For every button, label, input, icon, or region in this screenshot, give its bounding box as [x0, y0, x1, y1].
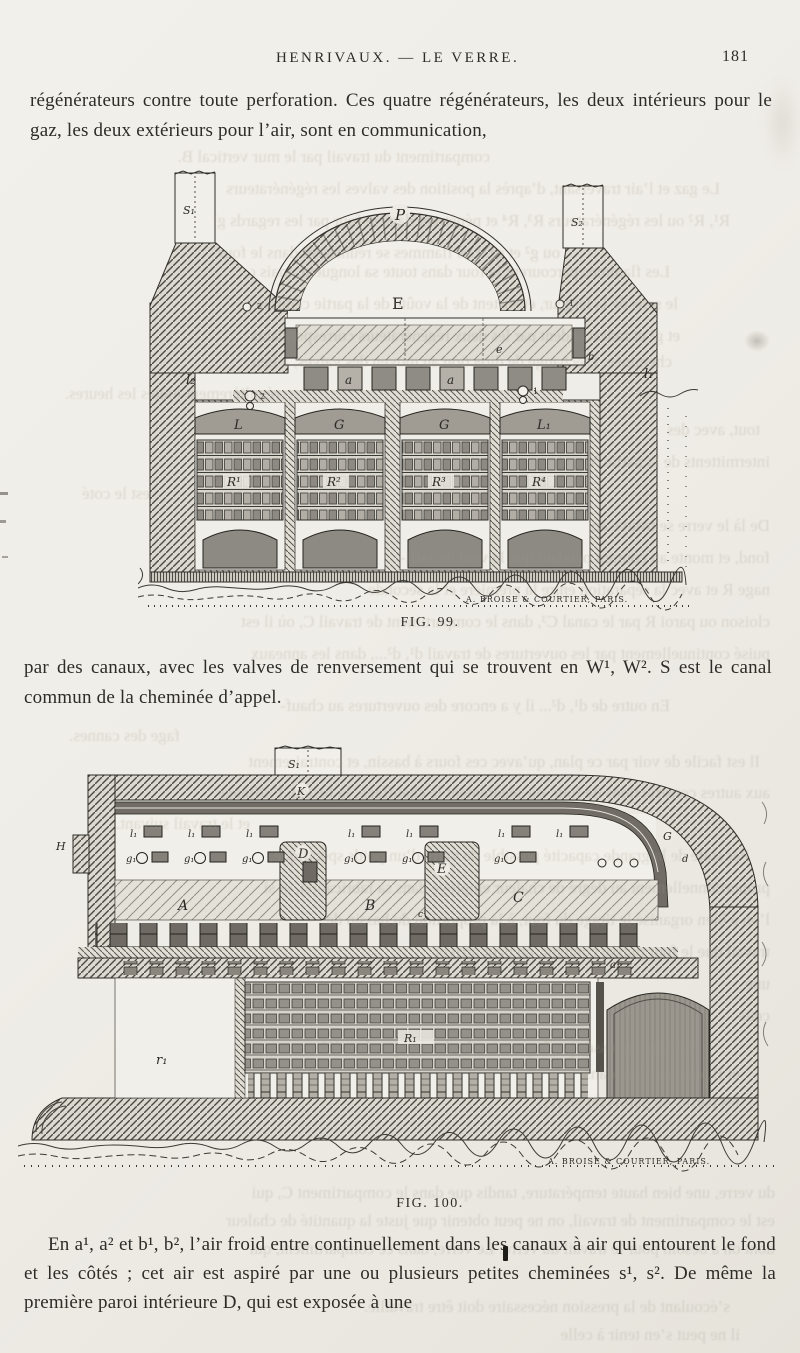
fig99-engraving: L R¹ G R² G R³ L₁: [138, 168, 708, 618]
fig100-engraver-signature: A. BROISE & COURTIER, PARIS.: [547, 1157, 710, 1166]
fig99-chamber-3: G R³: [400, 402, 490, 570]
fig99-label-l2: l₂: [186, 373, 195, 388]
fig99-checker-label-3: R³: [431, 475, 446, 489]
bleed-line: est le coté: [30, 484, 150, 504]
fig100-damper-row: [95, 923, 640, 947]
fig99-valve-num-right: 1: [533, 387, 538, 396]
edge-mark: [0, 520, 6, 523]
fig100-lower-wall-checker: [118, 961, 638, 975]
fig100-label-a1: a₁: [610, 960, 620, 971]
paragraph-3: En a¹, a² et b¹, b², l’air froid entre c…: [24, 1230, 776, 1317]
fig99-label-s1: S₁: [183, 204, 195, 217]
fig100-label-h: H: [55, 840, 66, 853]
fig99-valve-num-left: 2: [260, 392, 265, 401]
edge-mark: [2, 556, 8, 558]
edge-mark: [0, 492, 8, 495]
fig100-label-l1: l₁: [130, 829, 137, 840]
fig100-label-R1: R₁: [403, 1032, 417, 1045]
fig100-label-b: B: [364, 898, 375, 914]
fig99-label-l1: l₁: [644, 367, 653, 382]
fig100-label-l1: l₁: [498, 829, 505, 840]
fig100-label-s1: S₁: [288, 758, 300, 771]
fig99-label-s2: S₂: [571, 216, 583, 229]
fig100-right-ports: [598, 859, 638, 867]
fig99-molten-glass: [296, 325, 572, 360]
fig100-label-g1: g₁: [402, 854, 412, 865]
margin-smudge: [744, 330, 770, 352]
fig99-label-a-right: a: [447, 373, 454, 387]
fig100-bottom-wall: [32, 1098, 758, 1140]
fig100-label-l1: l₁: [188, 829, 195, 840]
fig100-right-wall: [710, 907, 758, 1102]
fig100-label-l1: l₁: [556, 829, 563, 840]
fig99-checker-label-2: R²: [326, 475, 341, 489]
fig99-valve-num-left-top: 2: [257, 302, 262, 311]
fig99-chamber-4: L₁ R⁴: [500, 402, 590, 570]
fig99-caption: FIG. 99.: [360, 615, 500, 631]
fig100-label-g1: g₁: [494, 854, 504, 865]
fig100-checker-supports: [248, 1073, 588, 1098]
fig100-label-g1: g₁: [242, 854, 252, 865]
fig100-label-g1: g₁: [184, 854, 194, 865]
running-head-title: HENRIVAUX. — LE VERRE.: [276, 50, 519, 67]
fig100-glass-band: [115, 880, 658, 920]
bleed-line: il ne peut s’en tenir à celle: [400, 1325, 740, 1345]
fig100-checkerwork: [245, 982, 590, 1073]
fig100-label-l1: l₁: [348, 829, 355, 840]
fig99-checker-label-1: R¹: [226, 475, 241, 489]
fig100-label-l1: l₁: [406, 829, 413, 840]
fig99-arch-label-2: G: [334, 418, 344, 433]
fig100-label-r1-small: r₁: [156, 1053, 167, 1068]
fig100-chimney: S₁: [275, 746, 341, 775]
fig100-label-e-pillar: E: [436, 862, 447, 877]
fig100-label-k: K: [296, 785, 306, 798]
ink-blot-artifact: [503, 1246, 508, 1261]
fig100-label-g: G: [663, 830, 672, 843]
fig100-label-g1: g₁: [344, 854, 354, 865]
fig99-engraver-signature: A. BROISE & COURTIER, PARIS.: [465, 595, 628, 604]
fig100-label-c: C: [513, 890, 524, 906]
fig100-label-g1: g₁: [126, 854, 136, 865]
scanned-book-page: compartiment du travail par le mur verti…: [0, 0, 800, 1353]
fig99-label-e-big: E: [392, 294, 404, 313]
fig100-partition-bar: [596, 982, 604, 1072]
fig100-label-a: A: [176, 898, 188, 914]
fig99-left-shoulder: [150, 243, 288, 373]
fig99-arch-label-3: G: [439, 418, 449, 433]
fig99-arch-label-1: L: [233, 418, 243, 433]
fig100-caption: FIG. 100.: [355, 1196, 505, 1212]
page-number: 181: [722, 48, 749, 66]
fig99-label-b: b: [588, 352, 594, 363]
fig99-label-p: P: [394, 206, 406, 224]
fig99-chimney-left: S₁: [175, 171, 215, 243]
fig100-label-l1: l₁: [246, 829, 253, 840]
fig100-chamber-pier: [235, 978, 245, 1098]
paragraph-2: par des canaux, avec les valves de renve…: [24, 653, 772, 713]
fig100-subband: [78, 947, 678, 958]
fig99-label-a-left: a: [345, 373, 352, 387]
fig99-left-post: [285, 328, 297, 358]
fig99-valve-num-right-top: 1: [569, 299, 574, 308]
fig99-arch-label-4: L₁: [536, 418, 551, 433]
fig99-label-e-small: e: [496, 343, 503, 356]
fig100-engraving: H A B C c¹ D E l₁ l₁ l₁ l₁ l₁ l₁ l₁ g₁ g…: [18, 742, 782, 1174]
fig99-right-post: [573, 328, 585, 358]
fig99-burner-blocks: a a: [304, 367, 566, 390]
fig99-spandrel: [233, 390, 563, 402]
fig100-left-flue-stub: [73, 835, 89, 873]
fig100-pillar-d-port: [303, 862, 317, 882]
paragraph-1: régénérateurs contre toute perforation. …: [30, 86, 772, 146]
bleed-line: est le compartiment de travail, on ne pe…: [30, 1211, 775, 1231]
fig100-label-d-pillar: D: [297, 847, 309, 862]
fig99-chamber-1: L R¹: [195, 402, 285, 570]
fig100-label-d-small: d: [682, 854, 688, 865]
fig99-checker-label-4: R⁴: [531, 475, 546, 489]
bleed-line: compartiment du travail par le mur verti…: [30, 147, 490, 167]
fig99-floor: [150, 572, 682, 582]
fig99-chamber-2: G R²: [295, 402, 385, 570]
fig99-chimney-right: S₂: [563, 184, 603, 248]
